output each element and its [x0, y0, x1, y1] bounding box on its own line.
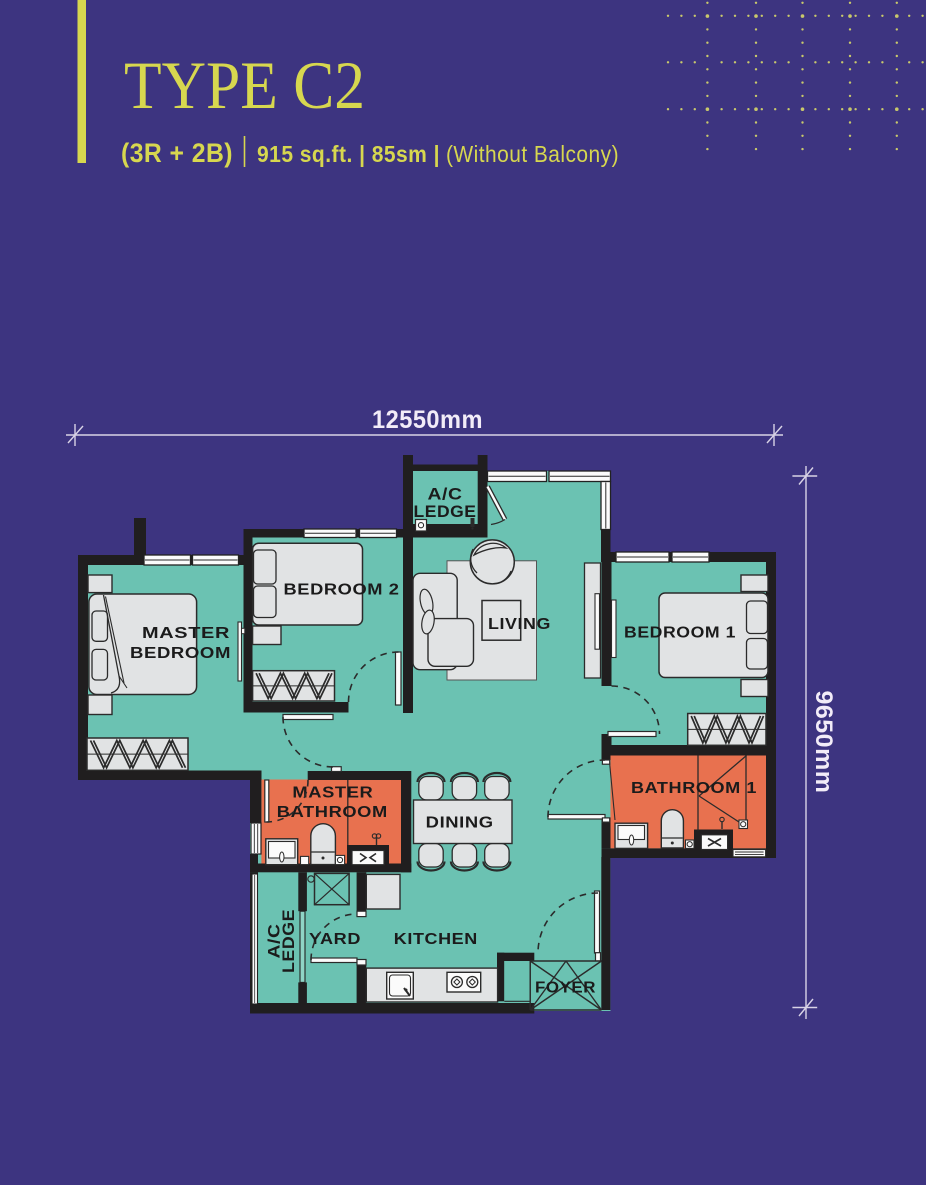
- svg-text:DINING: DINING: [426, 815, 494, 832]
- svg-text:LEDGE: LEDGE: [280, 909, 298, 973]
- svg-text:BEDROOM 1: BEDROOM 1: [624, 625, 736, 642]
- svg-text:MASTER: MASTER: [292, 784, 373, 801]
- svg-text:(3R + 2B): (3R + 2B): [121, 138, 233, 168]
- svg-text:9650mm: 9650mm: [810, 691, 837, 794]
- svg-text:(Without Balcony): (Without Balcony): [446, 141, 619, 167]
- svg-text:KITCHEN: KITCHEN: [394, 931, 478, 948]
- svg-text:TYPE C2: TYPE C2: [124, 47, 365, 123]
- svg-text:LIVING: LIVING: [488, 616, 551, 633]
- svg-text:BEDROOM: BEDROOM: [130, 645, 231, 662]
- svg-text:FOYER: FOYER: [535, 979, 596, 996]
- svg-text:12550mm: 12550mm: [372, 406, 483, 434]
- svg-text:MASTER: MASTER: [142, 625, 230, 642]
- svg-text:LEDGE: LEDGE: [414, 503, 477, 521]
- svg-text:A/C: A/C: [428, 485, 463, 503]
- svg-text:YARD: YARD: [309, 931, 361, 948]
- svg-text:BEDROOM 2: BEDROOM 2: [284, 582, 400, 599]
- svg-text:915 sq.ft. | 85sm |: 915 sq.ft. | 85sm |: [257, 141, 440, 167]
- svg-text:BATHROOM 1: BATHROOM 1: [631, 780, 757, 797]
